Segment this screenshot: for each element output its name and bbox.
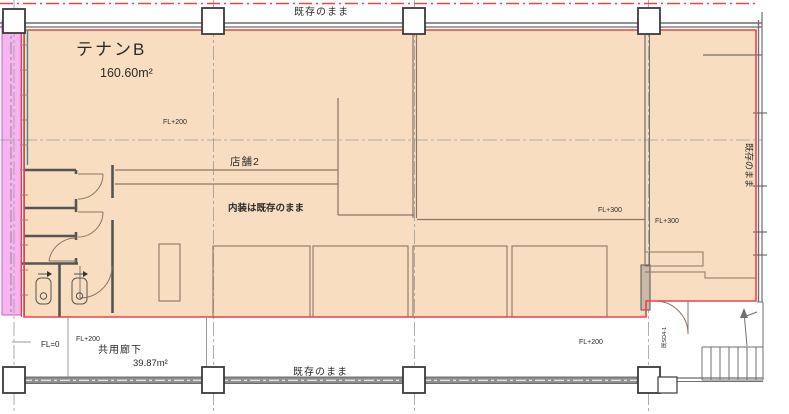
fl200-bottom-right-label: FL+200 (579, 339, 603, 346)
fl-zero-label: FL=0 (41, 340, 60, 349)
fl300-right-label: FL+300 (655, 218, 679, 225)
shop2-label: 店舗2 (230, 155, 260, 168)
existing-top-label: 既存のまま (294, 5, 349, 18)
existing-right-label: 既存のまま (744, 143, 755, 188)
corridor-floor-level-label: FL+200 (76, 336, 100, 343)
corridor-name-label: 共用廊下 (98, 343, 142, 356)
door-tag-label: 既SD4-1 (661, 327, 668, 348)
tenant-floor-level-label: FL+200 (163, 119, 187, 126)
interior-note-label: 内装は既存のまま (228, 202, 304, 214)
stairs (702, 302, 763, 380)
corridor-area-label: 39.87m² (133, 358, 168, 369)
floor-plan-canvas: テナンB 160.60m² FL+200 店舗2 内装は既存のまま 既存のまま … (0, 0, 789, 414)
tenant-name-label: テナンB (76, 40, 146, 59)
existing-bottom-label: 既存のまま (293, 365, 348, 378)
floor-plan-drawing: テナンB 160.60m² FL+200 店舗2 内装は既存のまま 既存のまま … (0, 0, 789, 414)
stairs-direction-arrow (740, 308, 757, 346)
fl300-left-label: FL+300 (598, 207, 622, 214)
tenant-area-label: 160.60m² (100, 66, 153, 80)
highlight-strip-left (2, 21, 21, 315)
